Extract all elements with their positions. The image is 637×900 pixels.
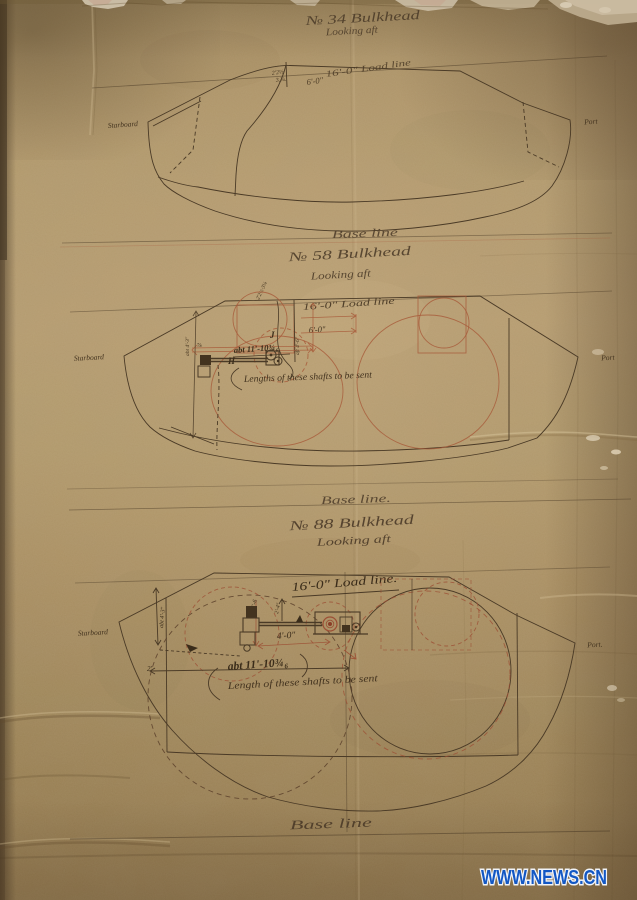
svg-text:Base line: Base line: [290, 815, 373, 833]
svg-text:Base line: Base line: [332, 227, 398, 241]
svg-text:aft 4'-6": aft 4'-6": [294, 336, 301, 355]
svg-text:Port: Port: [583, 116, 599, 126]
svg-text:6'-0": 6'-0": [308, 324, 326, 335]
svg-text:H: H: [227, 356, 236, 366]
svg-text:Port: Port: [600, 353, 616, 363]
svg-text:WWW.NEWS.CN: WWW.NEWS.CN: [481, 866, 607, 889]
svg-text:Starboard: Starboard: [74, 352, 105, 363]
svg-text:Port.: Port.: [586, 640, 603, 650]
svg-text:⅞: ⅞: [197, 342, 202, 349]
svg-text:Base line.: Base line.: [321, 493, 391, 507]
svg-text:abt 4'-3": abt 4'-3": [184, 336, 191, 356]
svg-text:4'-0": 4'-0": [277, 631, 297, 642]
svg-text:J: J: [269, 330, 275, 340]
svg-text:Starboard: Starboard: [78, 627, 109, 638]
